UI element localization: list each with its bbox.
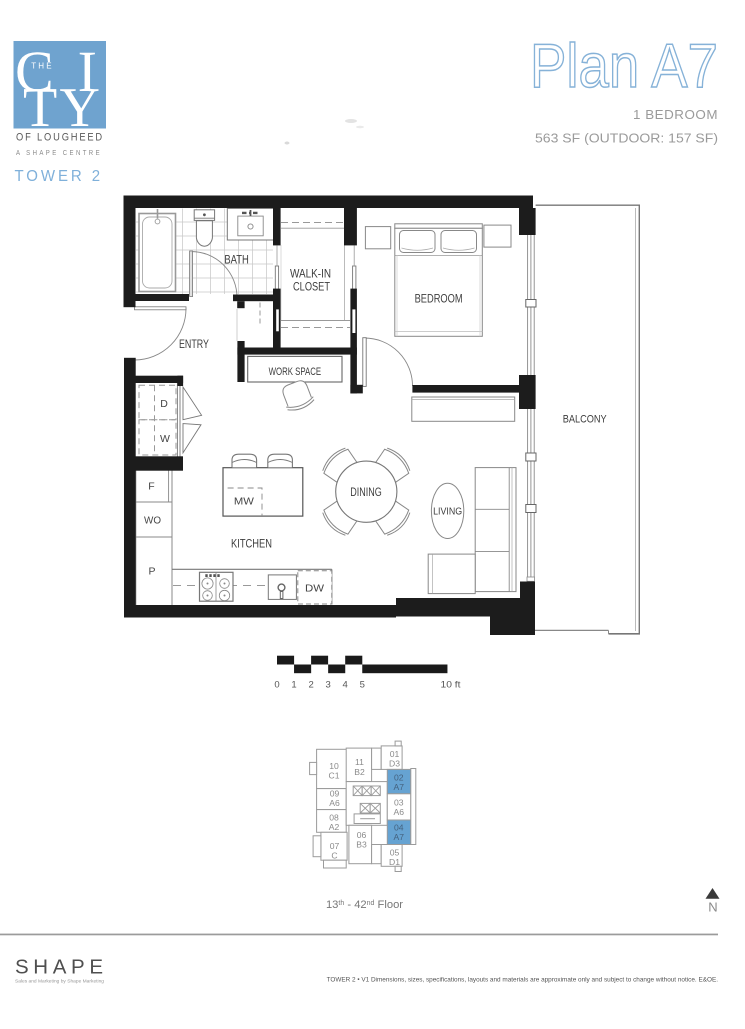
svg-text:4: 4 — [343, 680, 348, 691]
svg-text:D: D — [160, 398, 168, 410]
svg-text:11: 11 — [355, 757, 364, 767]
svg-text:10: 10 — [329, 761, 339, 771]
svg-text:2: 2 — [308, 680, 313, 691]
svg-text:THE: THE — [31, 62, 54, 71]
svg-text:07: 07 — [330, 841, 340, 851]
svg-text:3: 3 — [326, 680, 331, 691]
svg-text:01: 01 — [390, 749, 400, 759]
svg-text:04: 04 — [394, 823, 404, 833]
svg-text:A6: A6 — [329, 798, 340, 808]
svg-text:BATH: BATH — [224, 254, 249, 266]
svg-text:563 SF (OUTDOOR: 157 SF): 563 SF (OUTDOOR: 157 SF) — [535, 131, 718, 146]
svg-text:TOWER 2: TOWER 2 — [15, 168, 104, 185]
svg-text:A2: A2 — [329, 822, 340, 832]
svg-text:1: 1 — [291, 680, 296, 691]
svg-text:BALCONY: BALCONY — [563, 413, 608, 425]
svg-text:Plan A7: Plan A7 — [530, 32, 718, 101]
svg-text:DW: DW — [305, 583, 324, 595]
svg-text:08: 08 — [329, 813, 339, 823]
svg-text:P: P — [148, 566, 155, 578]
svg-text:Sales and Marketing by Shape M: Sales and Marketing by Shape Marketing — [15, 979, 104, 985]
svg-text:0: 0 — [274, 680, 279, 691]
svg-text:MW: MW — [234, 495, 254, 507]
svg-text:N: N — [708, 900, 717, 915]
svg-text:F: F — [148, 481, 154, 493]
svg-text:B3: B3 — [356, 840, 367, 850]
svg-text:5: 5 — [360, 680, 365, 691]
svg-text:A7: A7 — [394, 782, 405, 792]
svg-text:13th - 42nd Floor: 13th - 42nd Floor — [326, 899, 403, 911]
svg-text:A SHAPE CENTRE: A SHAPE CENTRE — [16, 150, 102, 157]
svg-text:B2: B2 — [354, 767, 365, 777]
svg-text:CLOSET: CLOSET — [293, 282, 330, 294]
svg-text:TY: TY — [23, 77, 100, 139]
svg-text:A7: A7 — [394, 832, 405, 842]
svg-text:02: 02 — [394, 773, 404, 783]
svg-text:WALK-IN: WALK-IN — [290, 268, 331, 280]
svg-text:1 BEDROOM: 1 BEDROOM — [633, 107, 718, 122]
svg-text:D3: D3 — [389, 759, 400, 769]
svg-text:LIVING: LIVING — [433, 505, 462, 517]
svg-text:KITCHEN: KITCHEN — [231, 539, 272, 551]
svg-text:10 ft: 10 ft — [441, 680, 461, 691]
svg-text:WORK SPACE: WORK SPACE — [269, 366, 322, 378]
svg-text:09: 09 — [330, 789, 340, 799]
svg-text:C: C — [331, 851, 337, 861]
svg-text:ENTRY: ENTRY — [179, 339, 209, 351]
svg-text:05: 05 — [390, 848, 400, 858]
svg-text:W: W — [160, 433, 170, 445]
svg-text:BEDROOM: BEDROOM — [415, 294, 463, 306]
svg-text:TOWER 2 • V1 Dimensions,: TOWER 2 • V1 Dimensions, sizes, specific… — [327, 977, 719, 984]
svg-text:OF LOUGHEED: OF LOUGHEED — [16, 132, 104, 144]
svg-text:A6: A6 — [394, 807, 405, 817]
svg-text:D1: D1 — [389, 857, 400, 867]
svg-text:WO: WO — [144, 515, 161, 527]
svg-text:SHAPE: SHAPE — [15, 956, 103, 979]
svg-text:C1: C1 — [329, 771, 340, 781]
svg-text:06: 06 — [357, 830, 367, 840]
svg-text:DINING: DINING — [350, 487, 382, 499]
svg-text:03: 03 — [394, 798, 404, 808]
